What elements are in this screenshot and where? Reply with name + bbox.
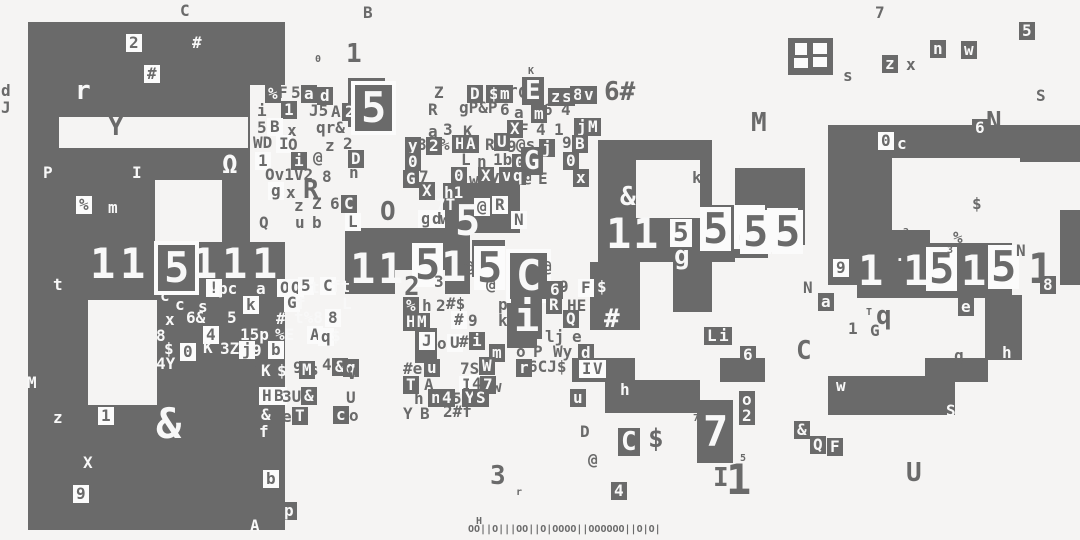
glyph: C	[796, 338, 812, 364]
glyph: A	[250, 518, 260, 534]
bg-cutout	[59, 117, 248, 148]
glyph: 7	[875, 5, 885, 21]
glyph: k	[498, 313, 508, 329]
bg-cutout	[88, 300, 157, 405]
glyph: 1	[346, 41, 362, 67]
glyph: C	[618, 428, 640, 456]
bg-cutout	[712, 140, 735, 205]
dark-block	[828, 376, 955, 415]
glyph: G	[870, 323, 880, 339]
glyph: n	[930, 40, 946, 58]
glyph: F	[827, 438, 843, 456]
glyph: 5	[158, 245, 195, 291]
glyph: T	[292, 407, 308, 425]
glyph: qr&	[316, 120, 345, 136]
glyph: K	[528, 67, 534, 77]
glyph: 2	[126, 34, 142, 52]
glyph: ft	[331, 279, 350, 295]
window-pane	[794, 58, 808, 68]
glyph: H	[476, 517, 482, 527]
glyph: 1	[858, 250, 883, 292]
glyph: N	[1016, 243, 1026, 259]
glyph: 1	[903, 250, 928, 292]
glyph: b	[263, 470, 279, 488]
glyph: M	[751, 110, 767, 136]
glyph: E	[522, 77, 544, 105]
glyph: gP&P	[459, 100, 498, 116]
glyph: #	[144, 65, 160, 83]
glyph: 1	[848, 321, 858, 337]
glyph: k	[692, 170, 702, 186]
glyph: E	[538, 171, 548, 187]
glyph: 6	[500, 102, 510, 118]
glyph: &	[620, 184, 636, 210]
glyph: 5	[227, 310, 237, 326]
glyph: f	[259, 424, 269, 440]
glyph: 7	[703, 411, 728, 453]
glyph: c	[897, 136, 907, 152]
glyph: 1	[90, 243, 115, 285]
glyph: W	[479, 357, 495, 375]
glyph: #	[604, 306, 620, 332]
window-pane	[795, 43, 807, 55]
glyph: 1	[961, 250, 986, 292]
glyph: 9	[468, 313, 478, 329]
glyph: S	[473, 389, 489, 407]
glyph: Q	[810, 436, 826, 454]
glyph: $	[597, 279, 607, 295]
glyph: w	[836, 378, 846, 394]
glyph: h	[620, 382, 630, 398]
glyph: i	[716, 327, 732, 345]
glyph: #	[192, 35, 202, 51]
glyph: WD	[253, 135, 272, 151]
glyph: g	[674, 243, 690, 269]
glyph: o	[349, 408, 359, 424]
glyph: J	[1, 100, 11, 116]
glyph: 5	[988, 245, 1019, 289]
glyph: 5	[1019, 22, 1035, 40]
glyph: 5	[355, 85, 392, 131]
glyph: L	[345, 213, 361, 231]
glyph: 6	[543, 102, 553, 118]
glyph: 3Z	[220, 341, 239, 357]
glyph: I	[132, 165, 142, 181]
glyph: M	[414, 313, 430, 331]
glyph: &	[301, 387, 317, 405]
glyph: %	[440, 137, 450, 153]
glyph: u	[295, 215, 305, 231]
glyph: 1	[120, 243, 145, 285]
glyph: z	[53, 410, 63, 426]
glyph: $	[972, 196, 982, 212]
glyph: C	[341, 195, 357, 213]
glyph: 0	[878, 132, 894, 150]
glyph: i	[511, 295, 542, 339]
glyph: 4	[611, 482, 627, 500]
glyph: #	[451, 311, 467, 329]
glyph: k	[243, 296, 259, 314]
dark-block	[1060, 210, 1080, 285]
glyph: Q	[563, 310, 579, 328]
glyph: 3	[434, 274, 444, 290]
glyph: &	[261, 407, 271, 423]
glyph: %	[953, 230, 963, 246]
glyph: M	[27, 375, 37, 391]
glyph: X	[419, 182, 435, 200]
glyph: R	[492, 196, 508, 214]
glyph: 1	[252, 243, 277, 285]
glyph: c	[333, 406, 349, 424]
glyph: M	[585, 118, 601, 136]
glyph: p	[281, 502, 297, 520]
glyph: 0	[180, 343, 196, 361]
glyph: V	[590, 360, 606, 378]
glyph: 6#	[604, 79, 635, 105]
glyph: K	[261, 363, 271, 379]
dark-block	[1020, 125, 1080, 162]
glyph: x	[906, 57, 916, 73]
glyph: @	[542, 259, 552, 275]
glyph: 3U	[282, 389, 301, 405]
glyph: 5	[291, 85, 301, 101]
glyph: m	[108, 200, 118, 216]
glyph: 5	[740, 210, 771, 254]
glyph: t	[310, 280, 320, 296]
glyph: 3	[490, 463, 506, 489]
glyph: 6	[740, 346, 756, 364]
glyph: Z	[312, 196, 322, 212]
glyph: B	[363, 5, 373, 21]
glyph: K	[203, 340, 213, 356]
glyph: G	[403, 170, 419, 188]
glyph: $	[648, 426, 664, 452]
glyph: e	[282, 409, 292, 425]
glyph: 1	[192, 243, 217, 285]
glyph: i	[236, 361, 246, 377]
glyph: U	[906, 460, 922, 486]
window-pane	[813, 57, 827, 67]
glyph-noise-canvas: OO||O|||OO||O|OOOO||OOOOOO||O|O| CB75dJs…	[0, 0, 1080, 540]
glyph: 1	[350, 248, 375, 290]
glyph: w	[492, 379, 502, 395]
glyph: 4Y	[156, 356, 175, 372]
glyph: b	[312, 215, 322, 231]
glyph: a	[818, 293, 834, 311]
glyph: B	[420, 406, 430, 422]
glyph: s	[843, 68, 853, 84]
glyph: N	[986, 109, 1002, 135]
window-grid-icon	[788, 38, 833, 75]
glyph: 3	[947, 246, 953, 256]
glyph: 9	[559, 279, 569, 295]
glyph: r	[508, 83, 518, 99]
glyph: M	[299, 361, 315, 379]
glyph: N	[803, 280, 813, 296]
glyph: 1	[281, 101, 297, 119]
glyph: 6&	[186, 310, 205, 326]
glyph: @	[313, 150, 323, 166]
glyph: d	[1, 83, 11, 99]
glyph: 2	[739, 407, 755, 425]
glyph: 1	[378, 248, 403, 290]
glyph: N	[511, 211, 527, 229]
glyph: Q	[259, 215, 269, 231]
glyph: &	[156, 403, 181, 445]
glyph: b	[268, 341, 284, 359]
glyph: z	[325, 138, 335, 154]
glyph: x	[573, 169, 589, 187]
glyph: D	[580, 424, 590, 440]
glyph: o	[437, 336, 447, 352]
glyph: 5	[455, 200, 480, 242]
glyph: 1	[222, 243, 247, 285]
glyph: @	[464, 259, 474, 275]
glyph: p	[498, 297, 508, 313]
glyph: g	[268, 182, 284, 200]
glyph: 1	[98, 407, 114, 425]
glyph: C	[180, 3, 190, 19]
glyph: u	[570, 389, 586, 407]
glyph: 1	[726, 459, 751, 501]
glyph: 6CJ$	[528, 359, 567, 375]
glyph: v	[581, 86, 597, 104]
glyph: i	[469, 332, 485, 350]
glyph: R	[546, 296, 562, 314]
glyph: R	[428, 102, 438, 118]
glyph: &	[794, 421, 810, 439]
glyph: $	[277, 363, 287, 379]
glyph: w	[961, 41, 977, 59]
bg-cutout	[155, 180, 222, 242]
glyph: g	[954, 348, 964, 364]
glyph: 1	[441, 246, 466, 288]
glyph: lj	[545, 329, 564, 345]
glyph: T	[866, 308, 872, 318]
glyph: X	[83, 455, 93, 471]
glyph: n	[349, 165, 359, 181]
glyph: r	[75, 78, 91, 104]
glyph: t	[53, 277, 63, 293]
glyph: P	[43, 165, 53, 181]
glyph: J5	[309, 103, 328, 119]
glyph: 4	[322, 357, 332, 373]
glyph: 9	[252, 343, 262, 359]
glyph: Z	[434, 85, 444, 101]
window-pane	[813, 43, 827, 54]
glyph: r	[516, 488, 522, 498]
glyph: L	[342, 296, 352, 312]
barcode-row: OO||O|||OO||O|OOOO||OOOOOO||O|O|	[468, 524, 661, 535]
glyph: %	[76, 196, 92, 214]
glyph: 0	[315, 55, 321, 65]
glyph: 8	[322, 169, 332, 185]
glyph: $	[331, 328, 341, 344]
glyph: O	[380, 199, 396, 225]
glyph: 7	[693, 414, 699, 424]
glyph: U	[346, 390, 356, 406]
glyph: #	[459, 334, 469, 350]
glyph: @	[522, 169, 532, 185]
glyph: 5	[700, 207, 731, 251]
glyph: F	[278, 85, 288, 101]
glyph: 2#f	[443, 404, 472, 420]
glyph: 8	[325, 309, 341, 327]
glyph: x	[165, 312, 175, 328]
glyph: 1	[606, 213, 631, 255]
glyph: 4	[561, 102, 571, 118]
glyph: t%8	[294, 310, 323, 326]
glyph: S	[1036, 88, 1046, 104]
glyph: V	[347, 366, 357, 382]
glyph: i	[257, 103, 267, 119]
glyph: Y	[403, 406, 413, 422]
glyph: c	[175, 297, 185, 313]
glyph: e	[572, 329, 582, 345]
glyph: Ω	[222, 152, 238, 178]
glyph: @	[486, 277, 496, 293]
glyph: @	[588, 452, 598, 468]
glyph: 4	[536, 122, 546, 138]
glyph: 8	[1040, 276, 1056, 294]
glyph: z	[294, 198, 304, 214]
glyph: 6	[330, 196, 340, 212]
glyph: 1	[633, 213, 658, 255]
glyph: Y	[108, 114, 124, 140]
glyph: 2	[436, 298, 446, 314]
glyph: z	[882, 55, 898, 73]
glyph: J	[419, 332, 435, 350]
glyph: S	[946, 403, 956, 419]
glyph: 6	[972, 119, 988, 137]
glyph: 9	[833, 259, 849, 277]
glyph: e	[958, 298, 974, 316]
glyph: F	[578, 279, 594, 297]
glyph: 2	[903, 228, 909, 238]
glyph: 9	[562, 135, 572, 151]
glyph: h	[1002, 345, 1012, 361]
glyph: 5	[772, 210, 803, 254]
glyph: 9	[73, 485, 89, 503]
